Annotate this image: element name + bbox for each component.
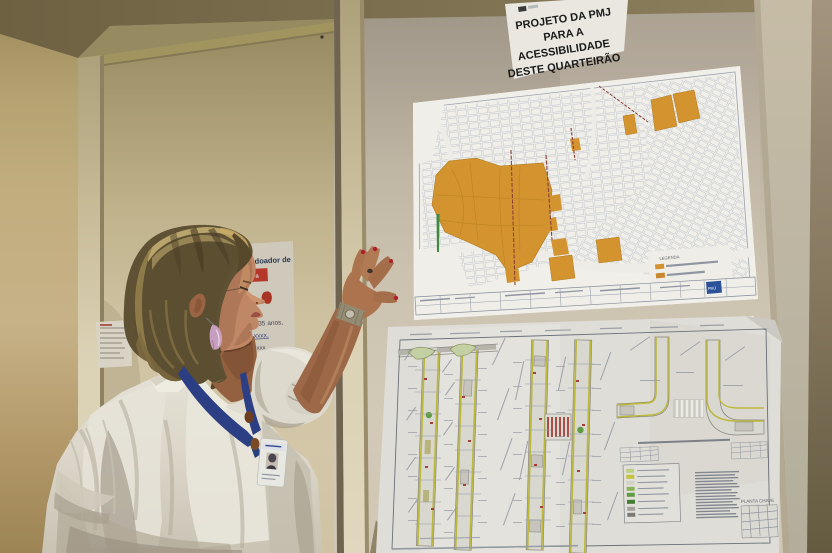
svg-text:35 anos,: 35 anos,: [258, 319, 283, 327]
svg-text:xxxx,: xxxx,: [254, 332, 269, 340]
svg-text:PMJ: PMJ: [708, 285, 716, 291]
